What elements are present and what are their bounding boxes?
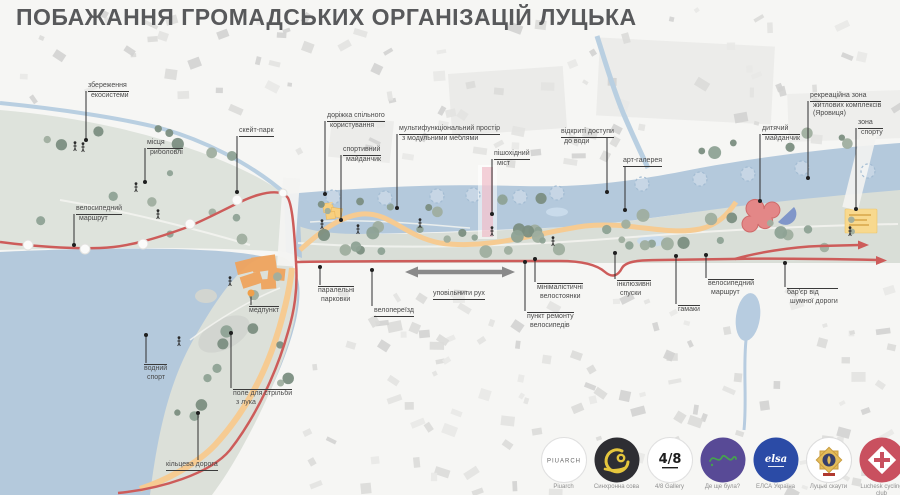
map-label-text: з модульними меблями: [399, 135, 500, 144]
map-label-text: користування: [327, 122, 385, 131]
partner-logo-lutsk-scouts: Луцькі скаути: [802, 437, 855, 495]
map-label-text: (Яровиця): [810, 110, 881, 119]
map-label-text: уповільнити рух: [433, 290, 485, 300]
map-label-text: місця: [147, 139, 183, 149]
pond-bottom-right: [733, 292, 763, 343]
stream-bottom-right: [744, 340, 746, 430]
map-label-text: міст: [494, 160, 530, 169]
pond-gray-small: [195, 289, 217, 303]
riverfront-map-slide: ПОБАЖАННЯ ГРОМАДСЬКИХ ОРГАНІЗАЦІЙ ЛУЦЬКА…: [0, 0, 900, 495]
map-label-text: спортивний: [343, 146, 381, 156]
map-label-text: велостоянки: [537, 293, 583, 302]
map-label-ring-road: кільцева дорога: [166, 461, 218, 471]
map-label-text: маршрут: [708, 289, 754, 298]
svg-text:elsa: elsa: [764, 454, 786, 465]
map-label-text: спорту: [858, 129, 883, 138]
map-label-parallel-parking: паралельніпарковки: [318, 286, 354, 304]
partner-logo-piuarch: PIUARCH Piuarch: [537, 437, 590, 495]
partner-logo-elsa-ukraine: elsa ЕЛСА Україна: [749, 437, 802, 495]
map-label-bike-crossing: велопереїзд: [374, 307, 414, 317]
map-label-bike-route-left: велосипедниймаршрут: [76, 205, 122, 223]
elsa-logo-icon: elsa: [753, 437, 799, 483]
map-label-text: парковки: [318, 296, 354, 305]
script-logo-icon: [700, 437, 746, 483]
map-label-sports-ground: спортивниймайданчик: [343, 146, 381, 164]
map-label-text: велосипедів: [527, 322, 574, 331]
svg-text:4/8: 4/8: [658, 452, 681, 467]
map-label-text: доріжка спільного: [327, 112, 385, 122]
partner-logo-synchronna-sova: Синхронна сова: [590, 437, 643, 495]
piuarch-logo-icon: PIUARCH: [541, 437, 587, 483]
map-label-text: житлових комплексів: [810, 102, 881, 111]
map-label-text: паралельні: [318, 286, 354, 296]
partner-logo-4-8-gallery: 4/8 4/8 Gallery: [643, 437, 696, 495]
partner-logo-luchesk-cycling-club: Luchesk cycling club: [855, 437, 900, 495]
map-label-bike-repair: пункт ремонтувелосипедів: [527, 312, 574, 330]
map-label-skate-park: скейт-парк: [239, 127, 274, 137]
map-label-text: дитячий: [762, 125, 800, 135]
map-label-text: з лука: [233, 399, 292, 408]
map-label-hammocks: гамаки: [678, 305, 700, 315]
map-label-text: спорт: [144, 374, 167, 383]
map-label-text: водний: [144, 364, 167, 374]
map-label-kids-playground: дитячиймайданчик: [762, 125, 800, 143]
partner-logo-caption: Синхронна сова: [590, 484, 643, 491]
partner-logo-caption: ЕЛСА Україна: [749, 484, 802, 491]
partner-logo-caption: Де ще була?: [696, 484, 749, 491]
map-label-art-gallery: арт-галерея: [623, 157, 662, 167]
partner-logos-bar: PIUARCH Piuarch Синхронна сова 4/8 4/8 G…: [537, 437, 900, 495]
map-canvas: [0, 0, 900, 495]
map-label-pedestrian-bridge: пішохіднийміст: [494, 150, 530, 168]
map-label-text: кільцева дорога: [166, 461, 218, 471]
svg-text:PIUARCH: PIUARCH: [546, 459, 580, 465]
map-label-text: відкриті доступи: [561, 128, 614, 138]
map-label-shared-path: доріжка спільногокористування: [327, 112, 385, 130]
map-label-text: гамаки: [678, 305, 700, 315]
partner-logo-caption: Piuarch: [537, 484, 590, 491]
map-label-fishing: місцяриболовлі: [147, 139, 183, 157]
partner-logo-caption: Luchesk cycling club: [855, 484, 900, 495]
map-label-text: зона: [858, 119, 883, 129]
map-label-text: пішохідний: [494, 150, 530, 160]
page-title: ПОБАЖАННЯ ГРОМАДСЬКИХ ОРГАНІЗАЦІЙ ЛУЦЬКА: [16, 4, 637, 31]
map-label-text: мультифункціональний простір: [399, 125, 500, 135]
map-label-slow-traffic: уповільнити рух: [433, 290, 485, 300]
map-label-text: велосипедний: [76, 205, 122, 215]
map-label-text: мінімалістичні: [537, 283, 583, 293]
map-label-text: маршрут: [76, 215, 122, 224]
map-label-water-sport: воднийспорт: [144, 364, 167, 382]
map-label-text: велосипедний: [708, 279, 754, 289]
map-label-text: бар'єр від: [787, 288, 838, 298]
cycling-club-cross-icon: [859, 437, 900, 483]
map-label-text: майданчик: [343, 156, 381, 165]
snail-logo-icon: [594, 437, 640, 483]
map-label-text: арт-галерея: [623, 157, 662, 167]
map-label-ecosystem: збереженняекосистеми: [88, 82, 129, 100]
partner-logo-de-shche-bula: Де ще була?: [696, 437, 749, 495]
map-label-text: медпункт: [249, 306, 279, 316]
map-label-text: майданчик: [762, 135, 800, 144]
map-label-text: спуски: [617, 290, 651, 299]
map-label-sport-zone: зонаспорту: [858, 119, 883, 137]
map-label-text: риболовлі: [147, 149, 183, 158]
scout-emblem-icon: [806, 437, 852, 483]
map-label-text: до води: [561, 138, 614, 147]
map-label-text: екосистеми: [88, 92, 129, 101]
map-label-inclusive-ramps: інклюзивніспуски: [617, 280, 651, 298]
pond-band-left: [546, 208, 568, 217]
map-label-text: скейт-парк: [239, 127, 274, 137]
map-label-text: шумної дороги: [787, 298, 838, 307]
map-label-text: інклюзивні: [617, 280, 651, 290]
gallery-logo-icon: 4/8: [647, 437, 693, 483]
map-label-bike-route-right: велосипедниймаршрут: [708, 279, 754, 297]
map-label-text: збереження: [88, 82, 129, 92]
map-label-text: пункт ремонту: [527, 312, 574, 322]
partner-logo-caption: 4/8 Gallery: [643, 484, 696, 491]
map-label-text: велопереїзд: [374, 307, 414, 317]
pedestrian-bridge-band: [478, 165, 497, 239]
map-label-minimal-bike-racks: мінімалістичнівелостоянки: [537, 283, 583, 301]
map-label-med-point: медпункт: [249, 306, 279, 316]
map-label-water-access: відкриті доступидо води: [561, 128, 614, 146]
map-label-noise-barrier: бар'єр відшумної дороги: [787, 288, 838, 306]
map-label-archery-field: поле для стрільбиз лука: [233, 389, 292, 407]
map-label-text: поле для стрільби: [233, 389, 292, 399]
map-label-text: рекреаційна зона: [810, 92, 881, 102]
map-label-recreation-zone: рекреаційна зонажитлових комплексів(Яров…: [810, 92, 881, 119]
map-label-multifunctional-space: мультифункціональний простірз модульними…: [399, 125, 500, 143]
partner-logo-caption: Луцькі скаути: [802, 484, 855, 491]
